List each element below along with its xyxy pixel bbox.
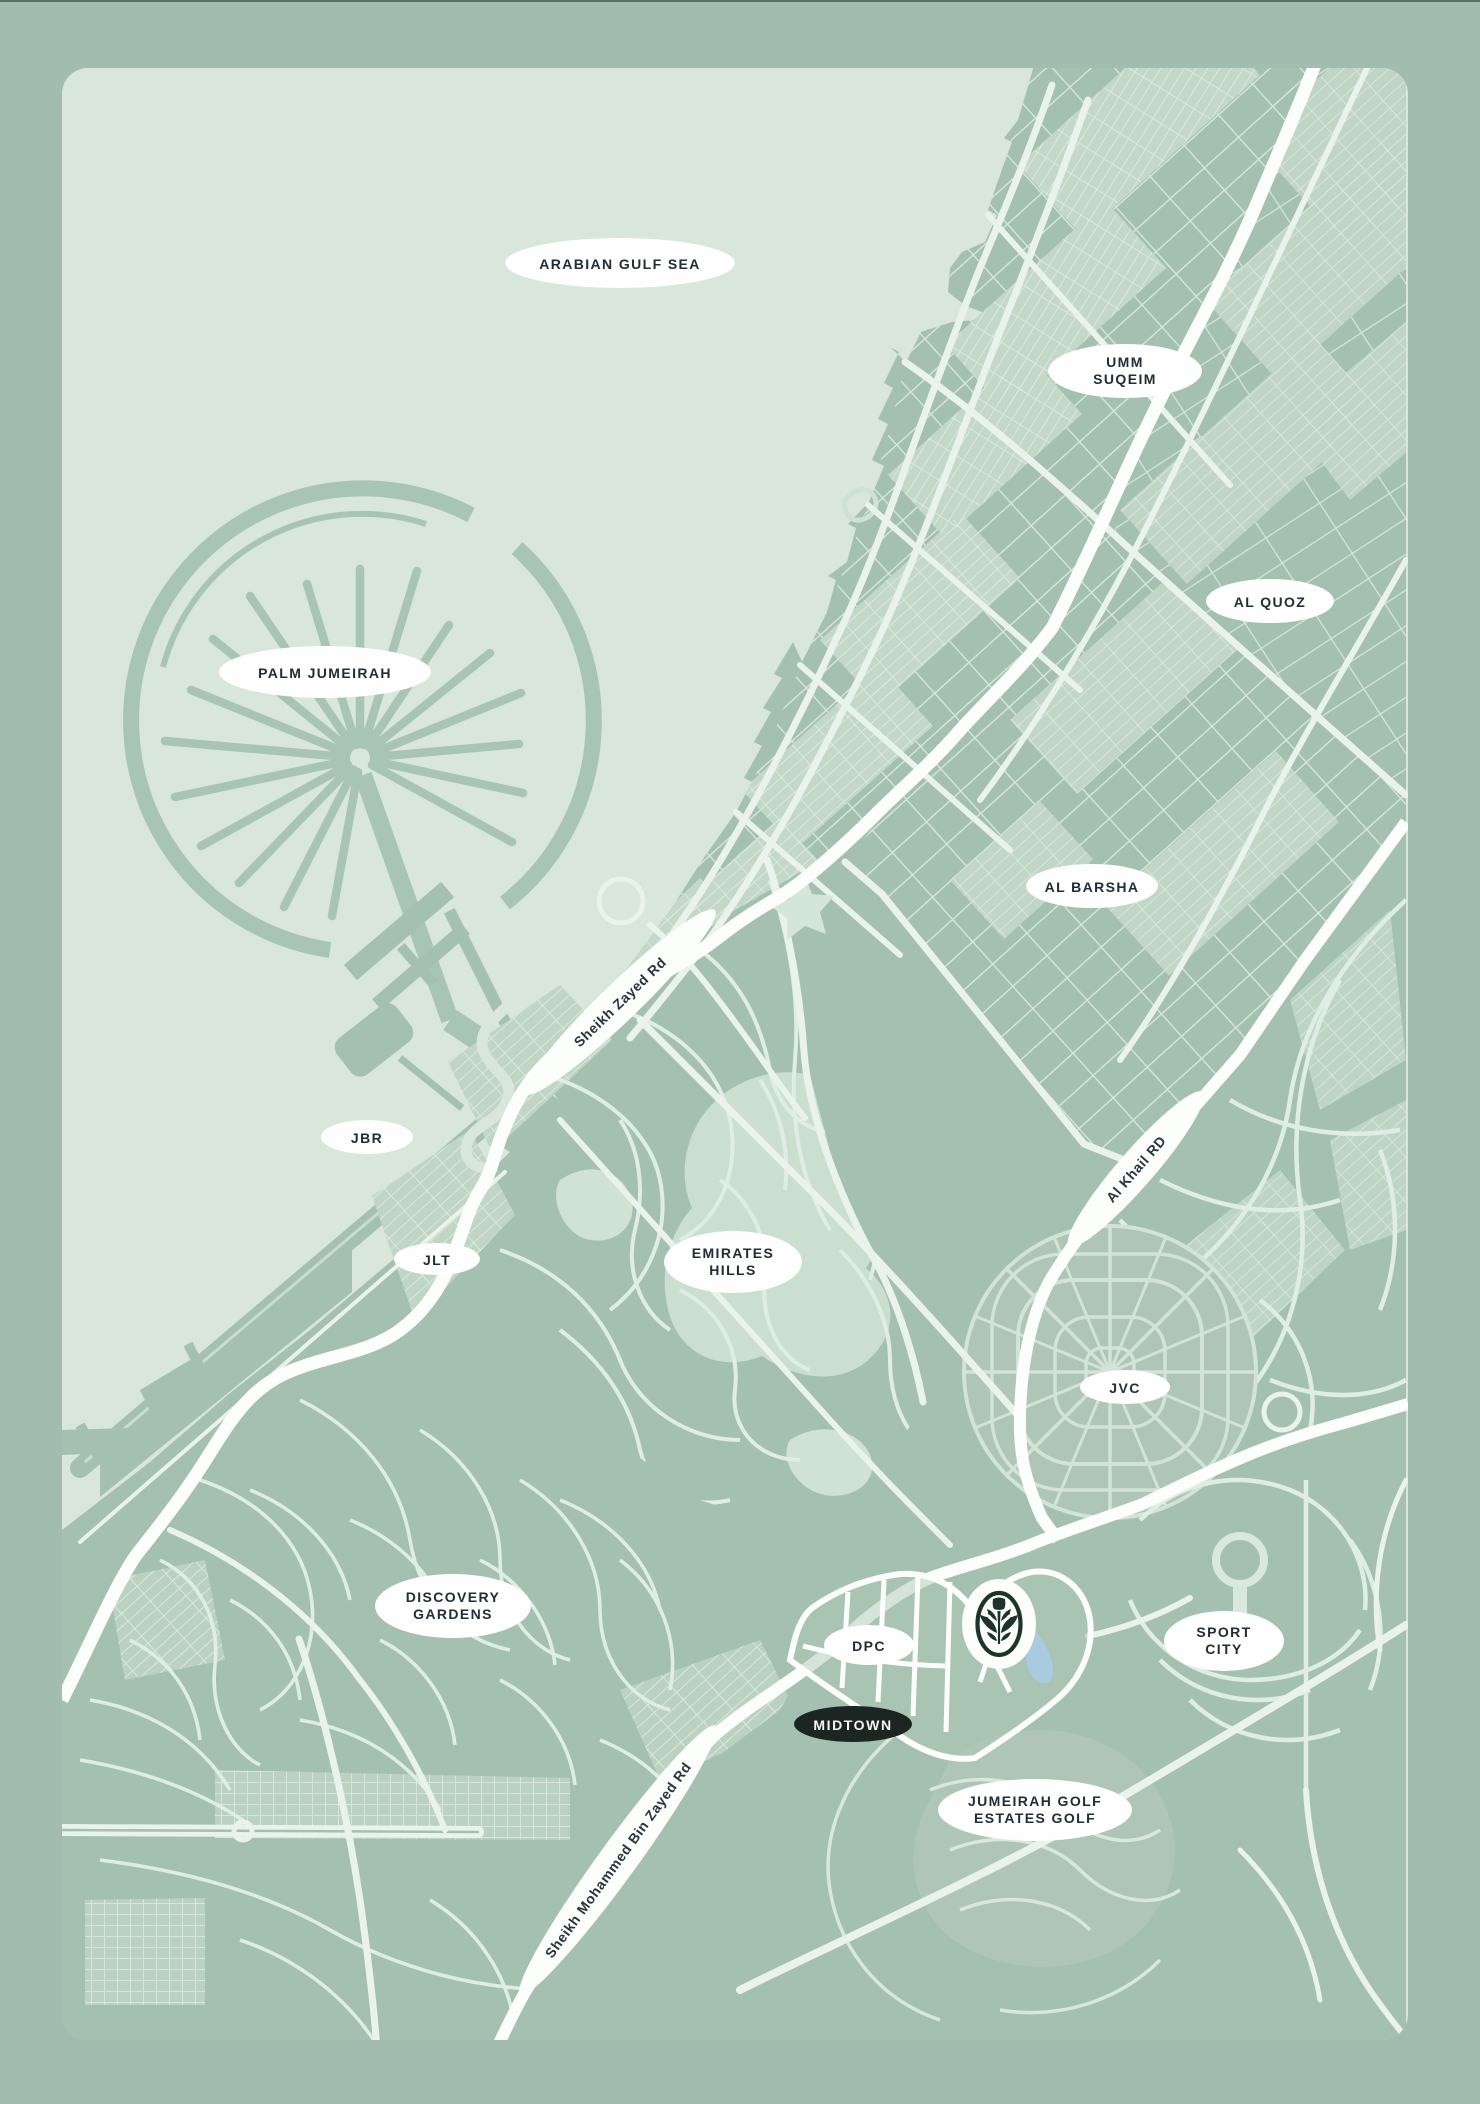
svg-text:SUQEIM: SUQEIM bbox=[1093, 371, 1157, 387]
svg-text:UMM: UMM bbox=[1106, 354, 1144, 370]
svg-text:JBR: JBR bbox=[351, 1130, 383, 1146]
svg-text:PALM JUMEIRAH: PALM JUMEIRAH bbox=[258, 665, 392, 681]
svg-text:AL BARSHA: AL BARSHA bbox=[1045, 879, 1140, 895]
svg-text:JUMEIRAH GOLF: JUMEIRAH GOLF bbox=[968, 1793, 1102, 1809]
svg-text:ESTATES GOLF: ESTATES GOLF bbox=[974, 1810, 1096, 1826]
svg-text:EMIRATES: EMIRATES bbox=[692, 1245, 775, 1261]
svg-text:DPC: DPC bbox=[852, 1638, 886, 1654]
svg-text:AL QUOZ: AL QUOZ bbox=[1234, 594, 1307, 610]
svg-text:HILLS: HILLS bbox=[709, 1262, 756, 1278]
svg-text:JVC: JVC bbox=[1109, 1380, 1140, 1396]
svg-text:DISCOVERY: DISCOVERY bbox=[406, 1589, 501, 1605]
svg-text:MIDTOWN: MIDTOWN bbox=[813, 1717, 892, 1733]
svg-text:ARABIAN GULF SEA: ARABIAN GULF SEA bbox=[539, 256, 701, 272]
svg-text:GARDENS: GARDENS bbox=[413, 1606, 493, 1622]
svg-text:CITY: CITY bbox=[1205, 1641, 1243, 1657]
svg-text:SPORT: SPORT bbox=[1196, 1624, 1251, 1640]
svg-text:JLT: JLT bbox=[423, 1252, 451, 1268]
